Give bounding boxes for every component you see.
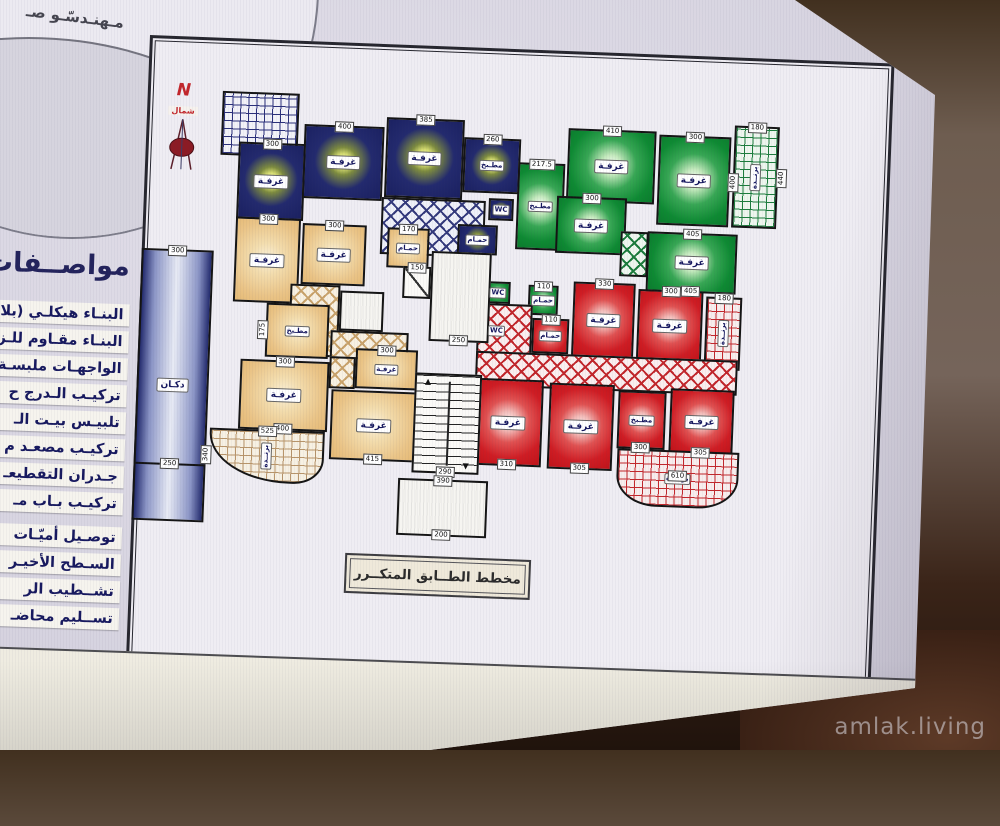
corridor-red-b	[475, 351, 738, 396]
spec-line: تســليم محاضـ	[0, 601, 119, 630]
wc-label: WC	[488, 325, 505, 337]
bath-green: 110 حمـام	[528, 285, 559, 316]
company-logo-circle	[0, 0, 319, 239]
north-letter: N	[160, 81, 209, 99]
room-label: غرفـة	[266, 388, 301, 403]
room-label: غرفـة	[316, 247, 351, 262]
corridor-orange-a	[288, 284, 341, 358]
corridor-orange-c	[329, 356, 356, 389]
wc-label: WC	[492, 204, 509, 216]
stairwell: ▲ ▼ 290	[411, 372, 482, 474]
bath-red: 110 حمـام	[531, 318, 569, 354]
poster-shade	[0, 0, 1000, 750]
spec-line: توصـيل أميّـات	[0, 520, 122, 549]
elevator: 150	[402, 266, 431, 299]
spec-line: السـطح الأخيـر	[0, 547, 121, 576]
kitchen-label: مطـبخ	[629, 414, 655, 426]
north-label: شمال	[168, 106, 198, 116]
dim-label: 310	[496, 459, 516, 471]
dim-label: 170	[399, 224, 419, 236]
dim-label: 300	[686, 132, 706, 144]
room-red-5: 305 غرفـة	[668, 388, 734, 455]
kitchen-label: مطـبخ	[284, 325, 310, 337]
dim-label: 300	[275, 356, 295, 368]
specs-heading: مواصــفات ا	[0, 245, 130, 283]
bath-label: حمـام	[538, 330, 562, 342]
dim-label: 300	[631, 442, 651, 454]
dim-label: 200	[431, 529, 451, 541]
dim-label: 525	[257, 425, 277, 437]
room-blue-2: 400 غرفـة	[302, 124, 385, 201]
room-orange-3: 300 400 غرفـة	[238, 359, 330, 432]
spec-line: البنـاء مقـاوم للـز	[0, 324, 129, 353]
dim-label: 110	[541, 314, 561, 326]
kitchen-label: مطـبخ	[527, 201, 553, 213]
wc-label: WC	[489, 287, 506, 299]
spec-line: تشــطيب الر	[0, 574, 120, 603]
dim-label: 300	[377, 345, 397, 357]
dim-label: 390	[433, 475, 453, 487]
dim-label: 300	[168, 245, 188, 257]
spec-line: تركيـب مصعـد م	[0, 432, 125, 461]
room-label: غرفـة	[563, 419, 598, 434]
room-label: غرفـة	[374, 363, 399, 375]
dim-label: 300	[582, 193, 602, 205]
balcony-label: برنــدة	[664, 473, 691, 485]
dim-label: 180	[747, 122, 767, 134]
kitchen-green: 217.5 مطـبخ	[515, 162, 565, 251]
dim-label: 180	[714, 293, 734, 305]
balcony-label: برنــدة	[717, 320, 729, 347]
plan-title-box: مخطط الطــابق المتكــرر	[344, 553, 531, 600]
dim-label: 400	[273, 423, 293, 435]
dim-label: 415	[362, 453, 382, 465]
room-blue-3: 385 غرفـة	[384, 117, 465, 200]
wc-blue: WC	[488, 198, 514, 221]
dim-label: 300	[661, 286, 681, 298]
dim-label: 175	[257, 320, 269, 340]
dim-label: 300	[259, 213, 279, 225]
bath-label: حمـام	[531, 294, 555, 306]
room-label: غرفـة	[674, 255, 709, 270]
room-green-4: 405 405 غرفـة	[646, 231, 738, 294]
kitchen-blue: 260 مطـبخ	[462, 137, 521, 194]
logo-inner-shape	[0, 37, 291, 239]
specs-list: البنـاء هيكلـي (بلا البنـاء مقـاوم للـز …	[0, 297, 130, 635]
dim-label: 330	[595, 278, 615, 290]
spec-line: جـدران التقطيعـ	[0, 459, 124, 488]
spec-line: تركيـب بـاب مـ	[0, 486, 123, 515]
dim-label: 400	[335, 121, 355, 133]
dim-label: 250	[160, 458, 180, 470]
room-label: غرفـة	[254, 174, 289, 189]
room-green-2: 300 400 غرفـة	[656, 135, 731, 228]
balcony-orange: 525 340 برنــدة	[208, 428, 325, 485]
room-label: غرفـة	[676, 173, 711, 188]
room-blue-1: 300 غرفـة	[236, 141, 306, 221]
shop-divider	[136, 462, 204, 467]
entrance-hall: 390 200	[396, 478, 488, 538]
room-orange-2: 300 غرفـة	[301, 223, 367, 286]
bath-label: حمـام	[396, 242, 420, 254]
dim-label: 250	[449, 335, 469, 347]
plan-title: مخطط الطــابق المتكــرر	[354, 565, 521, 587]
balcony-red-side: 180 برنــدة	[704, 297, 743, 371]
floor-plan: N شمال 300 دكـان 250 300 غرفـة 400 غرفـة	[126, 35, 894, 688]
shop-label: دكـان	[156, 378, 189, 393]
room-label: غرفـة	[356, 418, 391, 433]
bath-blue: حمـام	[457, 224, 498, 256]
dim-label: 110	[534, 281, 554, 293]
room-label: غرفـة	[250, 253, 285, 268]
poster: مـهنـدسّـو صـ مواصــفات ا البنـاء هيكلـي…	[0, 0, 1000, 750]
dim-label: 610	[668, 470, 688, 482]
dim-label: 400	[727, 173, 739, 193]
room-red-1: 330 غرفـة	[571, 281, 636, 358]
dim-label: 300	[263, 138, 283, 150]
balcony-green: 180 440 برنــدة	[731, 126, 780, 230]
room-label: غرفـة	[326, 155, 361, 170]
corridor-blue	[380, 197, 486, 258]
kitchen-label: مطـبخ	[479, 160, 505, 172]
spec-line: الواجهـات ملبسـة	[0, 351, 128, 380]
room-label: غرفـة	[684, 414, 719, 429]
dim-label: 260	[483, 134, 503, 146]
room-label: غرفـة	[652, 319, 687, 334]
plan-frame	[126, 35, 894, 688]
corridor-orange-b	[330, 330, 409, 361]
north-arrow: N شمال	[157, 81, 208, 175]
bath-label: حمـام	[465, 234, 489, 246]
kitchen-red: 300 مطـبخ	[616, 390, 666, 450]
room-orange-4: 415 غرفـة	[329, 389, 419, 462]
room-red-3: 310 غرفـة	[472, 378, 544, 468]
room-green-1: 410 غرفـة	[566, 128, 657, 204]
balcony-label: برنــدة	[260, 443, 272, 470]
dim-label: 410	[603, 125, 623, 137]
room-label: غرفـة	[407, 151, 442, 166]
balcony-blue	[220, 91, 299, 158]
kitchen-orange: 175 مطـبخ	[265, 303, 330, 359]
corridor-green	[619, 231, 649, 277]
stair-hall: 250	[428, 251, 491, 343]
dim-label: 305	[569, 462, 589, 474]
wc-red: WC	[483, 318, 509, 344]
room-label: غرفـة	[491, 415, 526, 430]
logo-text: مـهنـدسّـو صـ	[25, 2, 125, 32]
room-label: غرفـة	[594, 159, 629, 174]
room-green-3: 300 غرفـة	[555, 196, 627, 256]
dim-label: 405	[681, 286, 701, 298]
dim-label: 405	[683, 229, 703, 241]
room-orange-1: 300 غرفـة	[233, 216, 301, 303]
photo-of-floorplan-poster: { "photo": { "watermark": "amlak.living"…	[0, 0, 1000, 750]
dim-label: 300	[325, 220, 345, 232]
dim-label: 385	[416, 114, 436, 126]
dim-label: 440	[775, 168, 787, 188]
spec-line: البنـاء هيكلـي (بلا	[0, 297, 130, 326]
room-label: غرفـة	[574, 218, 609, 233]
room-orange-5: 300 غرفـة	[355, 348, 418, 390]
balcony-label: برنــدة	[749, 164, 761, 191]
shop-room: 300 دكـان 250	[131, 248, 213, 523]
wc-green: WC	[485, 281, 511, 304]
dim-label: 340	[200, 444, 212, 464]
room-red-4: 305 غرفـة	[547, 383, 615, 471]
dim-label: 305	[690, 447, 710, 459]
spec-line: تلبيـس بيـت الـ	[0, 405, 126, 434]
spec-line: تركيـب الـدرج ح	[0, 378, 127, 407]
room-red-2: 300 غرفـة	[636, 289, 704, 363]
bath-orange: 170 حمـام	[386, 227, 430, 269]
dim-label: 290	[435, 466, 455, 478]
room-label: غرفـة	[586, 312, 621, 327]
dim-label: 150	[407, 262, 427, 274]
balcony-red-bottom: 610 برنــدة	[615, 448, 739, 510]
watermark: amlak.living	[834, 714, 986, 740]
corridor-red-a	[476, 303, 533, 355]
dim-label: 217.5	[529, 159, 555, 171]
hall-small	[339, 290, 385, 332]
compass-icon	[164, 117, 200, 172]
